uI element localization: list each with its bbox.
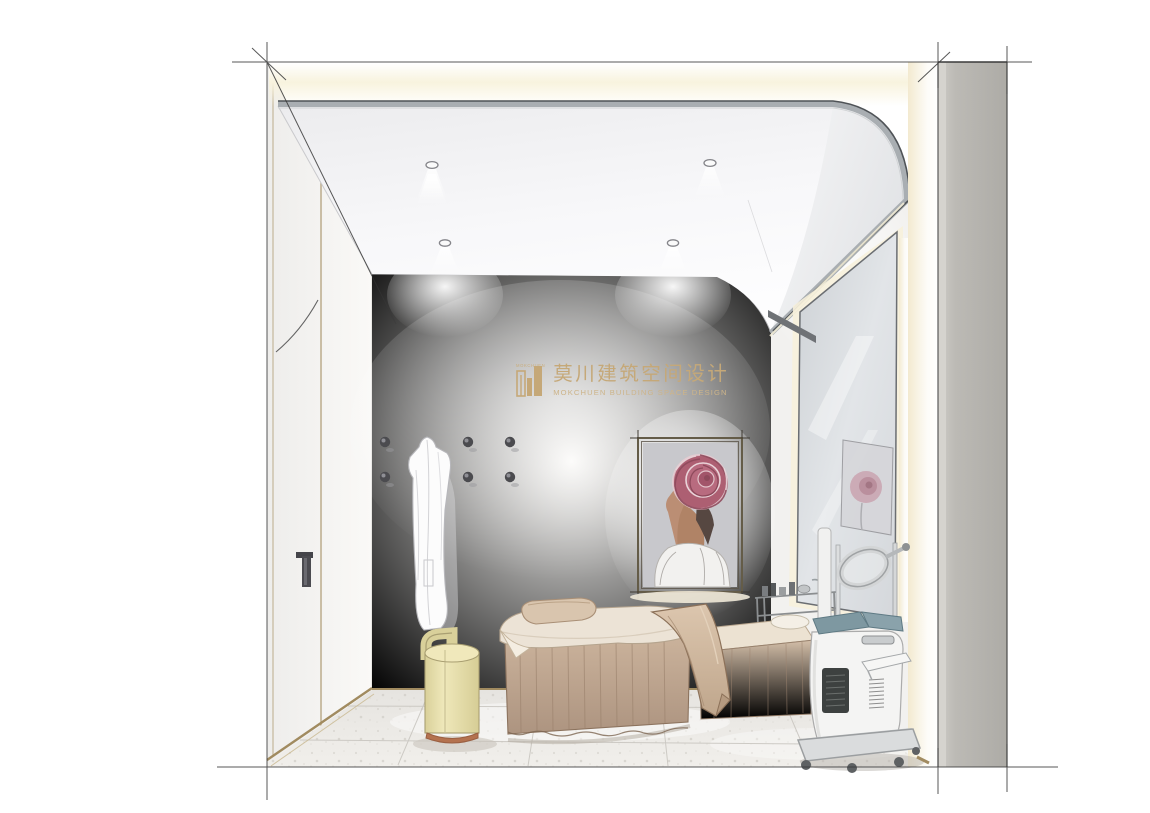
folded-towel [771,615,809,629]
rose-artwork [605,410,775,620]
watermark-logo: MOKCHUEN 莫川建筑空间设计 MOKCHUEN BUILDING SPAC… [516,363,729,397]
rose [673,455,727,509]
scene-drawing [0,0,1150,813]
structural-column [938,62,1007,767]
machine-holder-bar [818,528,831,626]
interior-rendering-canvas: MOKCHUEN 莫川建筑空间设计 MOKCHUEN BUILDING SPAC… [0,0,1150,813]
watermark-text: 莫川建筑空间设计 MOKCHUEN BUILDING SPACE DESIGN [553,363,729,397]
mirror-artwork-reflection [841,440,893,535]
mirror-edge-glow [899,238,908,622]
brand-name-chinese: 莫川建筑空间设计 [553,363,729,385]
machine-handle [862,636,894,644]
right-wall-fascia [908,62,938,767]
brand-name-english: MOKCHUEN BUILDING SPACE DESIGN [553,388,729,397]
buildings-glyph [516,363,543,397]
mokchuen-logo-icon: MOKCHUEN [516,363,545,368]
hanging-bathrobe [409,437,459,632]
cove-light-band [269,63,938,106]
